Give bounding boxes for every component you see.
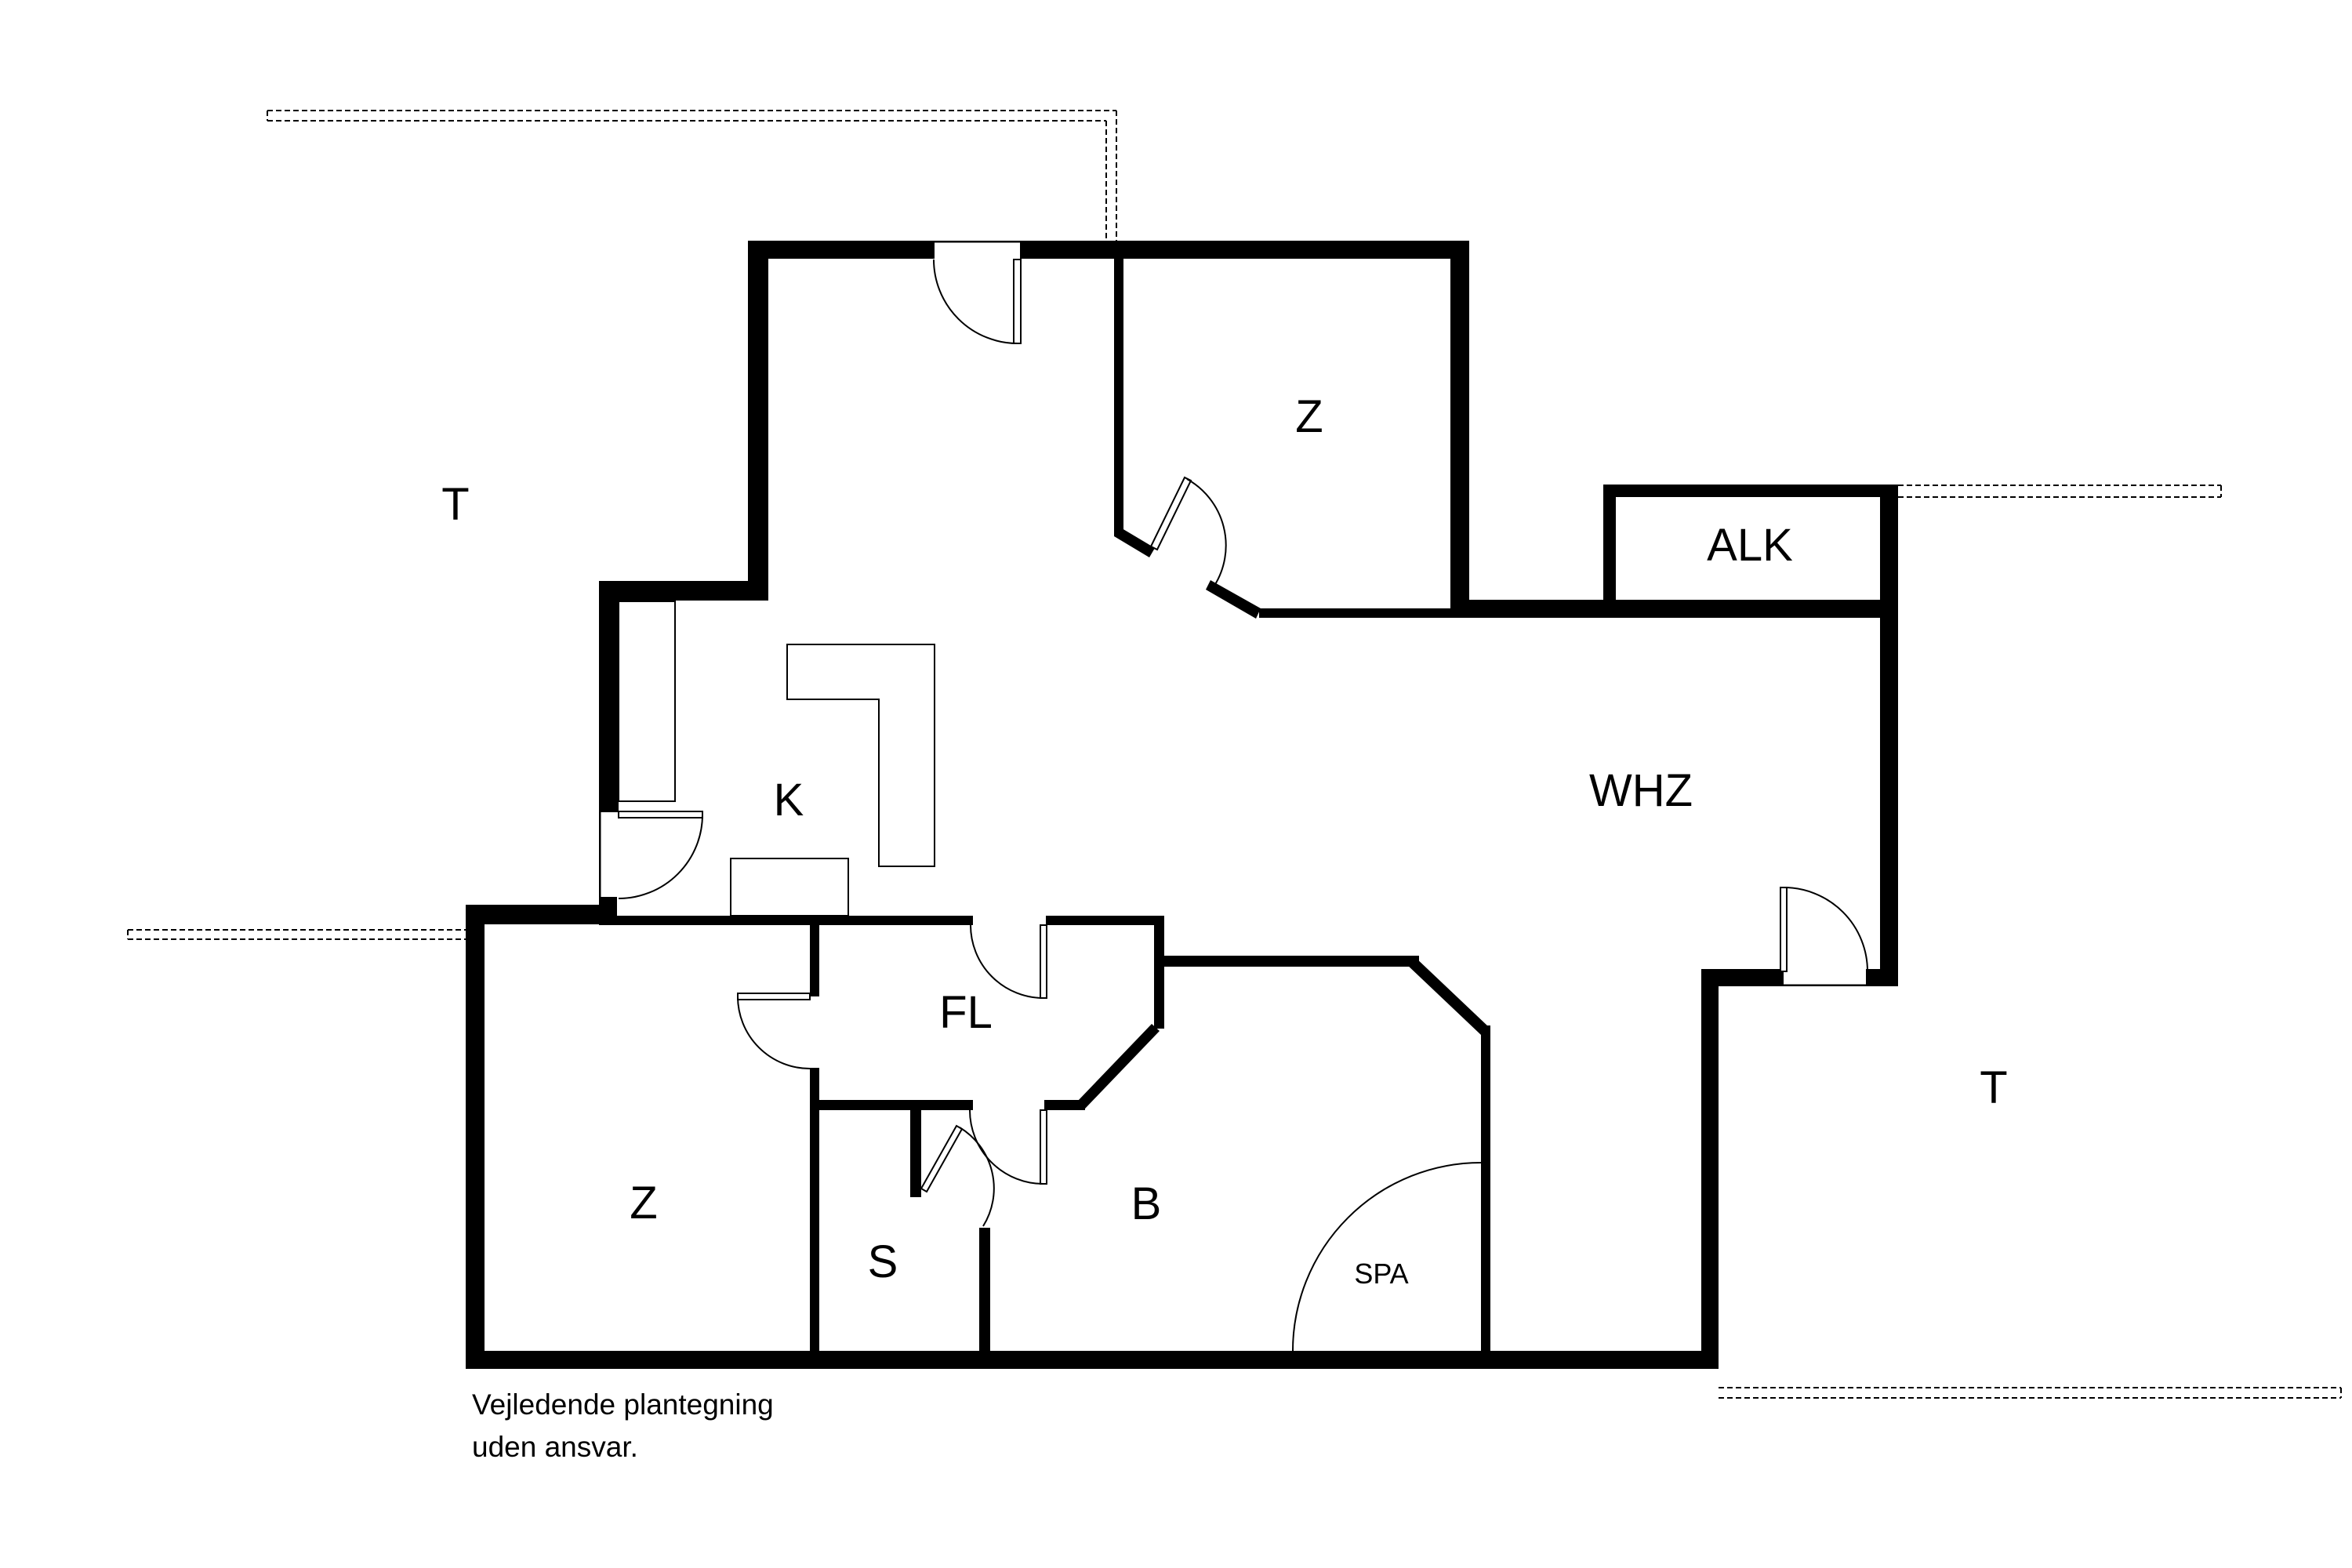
svg-text:FL: FL [939, 987, 993, 1038]
svg-text:Z: Z [1295, 391, 1323, 442]
svg-text:S: S [868, 1236, 898, 1287]
svg-text:ALK: ALK [1707, 520, 1793, 571]
svg-text:K: K [774, 775, 804, 826]
svg-text:Vejledende plantegning: Vejledende plantegning [472, 1388, 774, 1421]
svg-text:B: B [1131, 1178, 1162, 1229]
svg-text:T: T [441, 479, 469, 530]
svg-text:Z: Z [630, 1178, 657, 1229]
svg-text:uden ansvar.: uden ansvar. [472, 1431, 638, 1463]
svg-text:WHZ: WHZ [1589, 765, 1693, 816]
svg-text:SPA: SPA [1354, 1258, 1408, 1290]
svg-text:T: T [1980, 1062, 2007, 1113]
